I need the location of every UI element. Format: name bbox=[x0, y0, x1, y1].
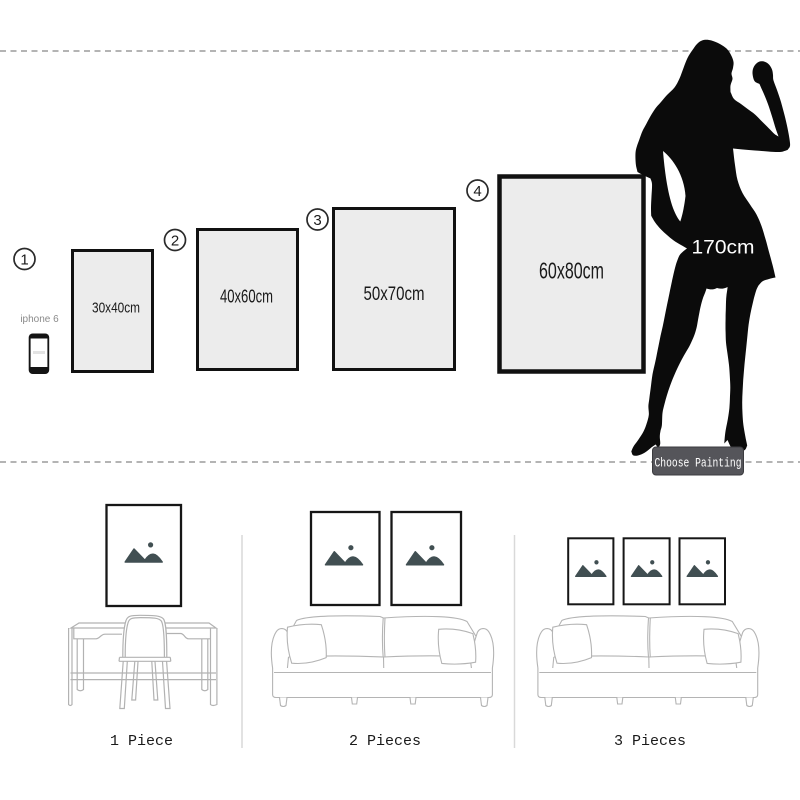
svg-text:30x40cm: 30x40cm bbox=[92, 299, 140, 316]
svg-text:60x80cm: 60x80cm bbox=[539, 258, 604, 284]
svg-text:Choose Painting: Choose Painting bbox=[655, 457, 742, 471]
svg-text:iphone 6: iphone 6 bbox=[20, 314, 59, 325]
svg-text:40x60cm: 40x60cm bbox=[220, 286, 273, 306]
svg-text:3: 3 bbox=[313, 212, 321, 229]
svg-text:50x70cm: 50x70cm bbox=[364, 284, 425, 305]
svg-text:170cm: 170cm bbox=[692, 237, 755, 259]
svg-text:3 Pieces: 3 Pieces bbox=[614, 733, 686, 750]
svg-text:1 Piece: 1 Piece bbox=[110, 733, 173, 750]
svg-text:2: 2 bbox=[171, 233, 179, 250]
svg-text:2 Pieces: 2 Pieces bbox=[349, 733, 421, 750]
svg-text:4: 4 bbox=[473, 183, 481, 200]
svg-text:1: 1 bbox=[20, 252, 28, 269]
